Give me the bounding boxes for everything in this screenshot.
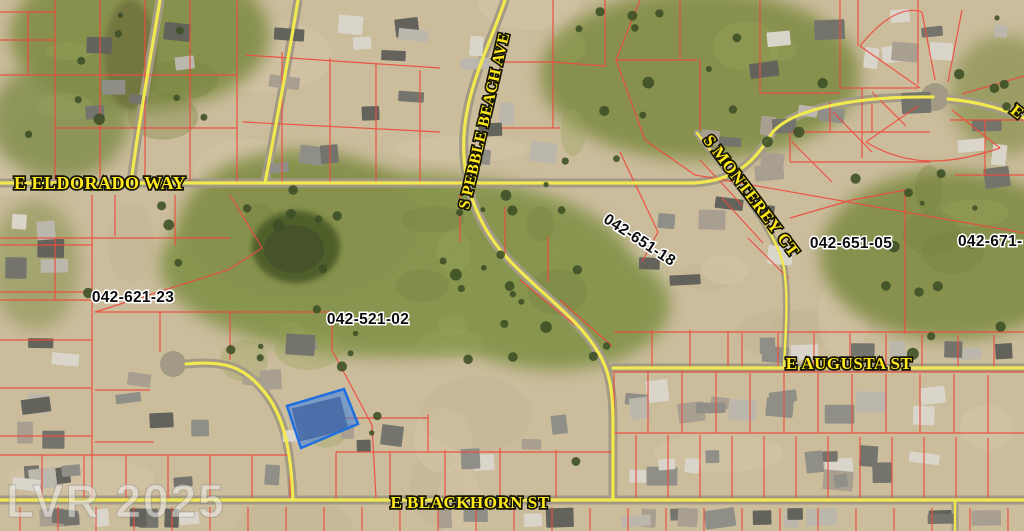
tree-canopy (706, 66, 712, 72)
tree-canopy (881, 281, 891, 291)
grass-mottle (903, 211, 961, 256)
tree-canopy (642, 77, 654, 89)
house-roof (274, 27, 305, 41)
tree-canopy (286, 209, 296, 219)
tree-canopy (337, 361, 347, 371)
tree-canopy (319, 264, 328, 273)
house-roof (753, 510, 772, 525)
tree-canopy (627, 11, 637, 21)
house-roof (859, 445, 879, 467)
grass-mottle (46, 43, 92, 60)
house-roof (461, 448, 481, 469)
house-roof (12, 214, 27, 230)
tree-canopy (920, 201, 925, 206)
parcel-label-042-521-02: 042-521-02 (327, 311, 409, 328)
tree-canopy (1000, 80, 1009, 89)
house-roof (524, 513, 543, 527)
house-roof (913, 406, 935, 426)
grass-mottle (552, 30, 586, 62)
house-roof (765, 397, 794, 418)
house-roof (469, 36, 484, 57)
tree-canopy (850, 174, 860, 184)
tree-canopy (348, 350, 354, 356)
listing-photo-aerial-map[interactable]: E ELDORADO WAY S PEBBLE BEACH AVE S MONT… (0, 0, 1024, 531)
house-roof (320, 144, 339, 164)
tree-canopy (933, 281, 943, 291)
tree-canopy (507, 205, 517, 215)
house-roof (657, 213, 675, 229)
house-roof (362, 106, 380, 121)
house-roof (901, 92, 931, 114)
tree-canopy (558, 206, 566, 214)
parcel-label-042-621-23: 042-621-23 (92, 289, 174, 306)
tree-canopy (508, 352, 518, 362)
tree-canopy (481, 265, 487, 271)
tree-canopy (954, 69, 964, 79)
grass-mottle (436, 231, 470, 272)
house-roof (698, 210, 725, 230)
house-roof (499, 102, 514, 124)
tree-canopy (496, 250, 505, 259)
tree-canopy (500, 320, 508, 328)
grass-mottle (396, 269, 449, 302)
tree-canopy (353, 331, 358, 336)
house-roof (994, 25, 1008, 38)
tree-canopy (174, 259, 182, 267)
street-label-e-eldorado-way: E ELDORADO WAY (14, 173, 186, 193)
tree-canopy (440, 257, 447, 264)
tree-canopy (762, 136, 773, 147)
house-roof (5, 257, 27, 279)
tree-canopy (200, 114, 207, 121)
tree-canopy (573, 265, 582, 274)
house-roof (696, 402, 726, 413)
tree-canopy (817, 78, 827, 88)
house-roof (356, 440, 370, 452)
house-roof (86, 37, 112, 54)
house-roof (658, 458, 676, 471)
tree-canopy (639, 112, 646, 119)
house-roof (760, 338, 776, 355)
tree-canopy (576, 25, 583, 32)
tree-canopy (518, 299, 524, 305)
tree-canopy (599, 106, 609, 116)
tree-canopy (226, 345, 235, 354)
street-label-e-blackhorn-st: E BLACKHORN ST (390, 493, 549, 512)
tree-canopy (456, 209, 463, 216)
house-roof (971, 510, 1001, 526)
house-roof (264, 464, 280, 485)
sand-patch (421, 376, 532, 452)
tree-canopy (332, 211, 341, 220)
tree-canopy (94, 113, 105, 124)
house-roof (806, 508, 837, 526)
house-roof (353, 36, 372, 49)
tree-canopy (243, 204, 251, 212)
house-roof (102, 80, 126, 95)
grass-mottle (416, 329, 482, 358)
house-roof (822, 451, 837, 462)
tree-canopy (603, 342, 610, 349)
tree-canopy (904, 188, 913, 197)
tree-canopy (25, 131, 32, 138)
house-roof (891, 41, 919, 62)
house-roof (825, 405, 855, 424)
tree-canopy (990, 83, 1000, 93)
street-label-e-augusta-st: E AUGUSTA ST (786, 354, 913, 373)
house-roof (983, 166, 1011, 189)
sand-patch (960, 405, 1013, 449)
house-roof (856, 391, 887, 413)
house-roof (37, 239, 64, 258)
house-roof (957, 138, 986, 153)
watermark-lvr-2025: LVR 2025 (6, 475, 226, 527)
house-roof (529, 141, 558, 165)
tree-canopy (75, 96, 82, 103)
tree-canopy (572, 457, 581, 466)
house-roof (787, 508, 803, 520)
parcel-map-image: E ELDORADO WAY S PEBBLE BEACH AVE S MONT… (0, 0, 1024, 531)
sand-patch (701, 255, 748, 284)
tree-canopy (176, 27, 184, 35)
grass-mottle (527, 206, 555, 242)
tree-canopy (288, 185, 298, 195)
tree-canopy (505, 281, 515, 291)
parcel-label-042-671-clipped: 042-671- (958, 233, 1022, 250)
tree-canopy (118, 13, 123, 18)
tree-canopy (173, 95, 180, 102)
tree-canopy (995, 321, 1005, 331)
house-roof (550, 414, 568, 434)
house-roof (546, 508, 574, 528)
house-roof (460, 57, 489, 69)
house-roof (191, 420, 209, 437)
tree-canopy (613, 155, 620, 162)
tree-canopy (480, 207, 485, 212)
house-roof (805, 450, 825, 473)
house-roof (754, 163, 784, 182)
house-roof (337, 14, 363, 35)
tree-canopy (157, 201, 166, 210)
tree-canopy (510, 291, 516, 297)
tree-canopy (793, 127, 804, 138)
tree-canopy (914, 287, 923, 296)
house-roof (920, 386, 946, 405)
house-roof (51, 352, 79, 366)
tree-canopy (729, 105, 737, 113)
tree-canopy (655, 9, 663, 17)
tree-canopy (463, 355, 473, 365)
tree-canopy (927, 332, 935, 340)
house-roof (522, 439, 542, 450)
grass-mottle (36, 93, 92, 120)
grass-mottle (561, 109, 586, 156)
tree-canopy (972, 205, 977, 210)
golf-pond-deep (264, 225, 324, 273)
house-roof (677, 507, 698, 527)
house-roof (285, 333, 315, 356)
house-roof (833, 474, 848, 488)
parcel-label-042-651-05: 042-651-05 (810, 235, 892, 252)
tree-canopy (631, 24, 639, 32)
tree-canopy (77, 57, 85, 65)
tree-canopy (732, 33, 741, 42)
tree-canopy (458, 285, 465, 292)
house-roof (381, 50, 406, 61)
grass-mottle (401, 206, 464, 232)
tree-canopy (258, 344, 263, 349)
house-roof (995, 343, 1013, 360)
tree-canopy (994, 15, 999, 20)
house-roof (705, 450, 719, 463)
tree-canopy (163, 220, 174, 231)
house-roof (929, 42, 953, 61)
house-roof (669, 274, 700, 286)
house-roof (684, 458, 700, 474)
tree-canopy (543, 182, 548, 187)
house-roof (766, 30, 791, 47)
house-roof (174, 55, 195, 70)
house-roof (629, 470, 649, 483)
tree-canopy (589, 352, 598, 361)
tree-canopy (450, 269, 462, 281)
tree-canopy (540, 321, 552, 333)
tree-canopy (369, 430, 374, 435)
tree-canopy (313, 305, 321, 313)
house-roof (149, 412, 174, 428)
tree-canopy (595, 7, 604, 16)
tree-canopy (373, 412, 381, 420)
house-roof (17, 422, 33, 444)
tree-canopy (1002, 102, 1011, 111)
tree-canopy (562, 157, 569, 164)
house-roof (944, 341, 962, 358)
tree-canopy (115, 30, 122, 37)
tree-canopy (500, 190, 511, 201)
tree-canopy (257, 354, 264, 361)
tree-canopy (315, 215, 323, 223)
tree-canopy (937, 169, 946, 178)
tree-canopy (273, 219, 285, 231)
house-roof (380, 424, 404, 447)
house-roof (728, 399, 757, 422)
house-roof (42, 431, 64, 449)
